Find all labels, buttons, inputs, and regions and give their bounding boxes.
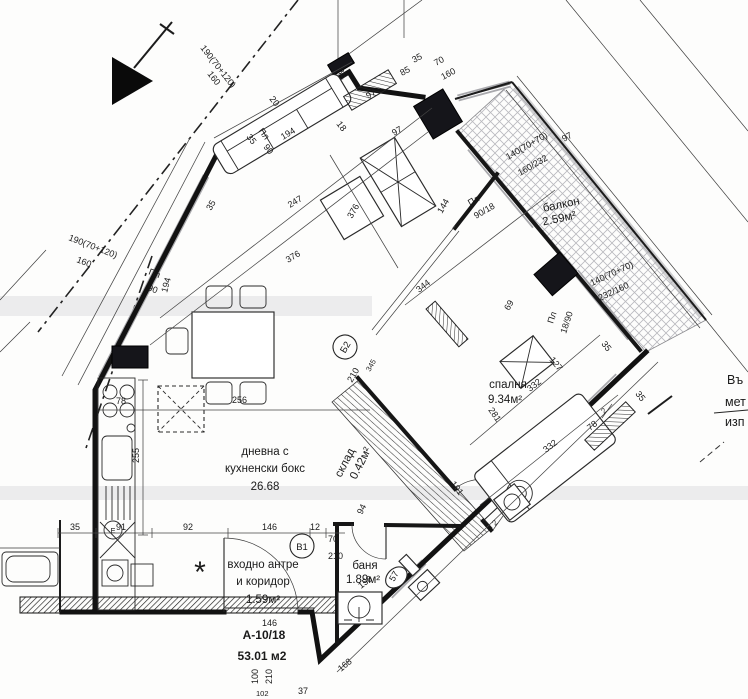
dim-label: 69 (502, 298, 516, 312)
dim-label: 376 (284, 248, 302, 264)
boiler-symbol: Е (110, 526, 115, 535)
window-label: Пл (545, 310, 558, 324)
window-label: 190(70+120) (67, 233, 118, 261)
dim-label: 35 (633, 389, 647, 403)
dim-label: 344 (414, 277, 432, 294)
dim-label: 281 (486, 405, 503, 423)
note-text: мет (725, 395, 746, 409)
room-label-bath: баня (352, 560, 377, 572)
dim-label: 146 (262, 618, 277, 628)
floor-plan-drawing: В1 Б2 190(70+120) 160 190(70+120) 160 70… (0, 0, 748, 699)
window-label: 160 (75, 255, 93, 270)
unit-code: А-10/18 (243, 628, 286, 642)
dim-label: 255 (131, 448, 141, 463)
room-label-hall: входно антре (227, 559, 298, 571)
bath-sink (338, 592, 382, 624)
dim-label: 97 (390, 124, 404, 138)
north-arrow (112, 22, 174, 105)
note-text: изп (725, 415, 744, 429)
dim-label: 92 (183, 522, 193, 532)
dim-label: 256 (232, 395, 247, 405)
window-label: 18/90 (558, 310, 574, 335)
dim-label: 70 (328, 534, 338, 544)
dim-label: 345 (364, 358, 378, 373)
dim-label: 37 (298, 686, 308, 696)
dim-label: 78 (116, 396, 126, 406)
dim-label: 12 (310, 522, 320, 532)
window-label: 160 (439, 66, 457, 82)
dim-label: 146 (262, 522, 277, 532)
room-label-living: кухненски бокс (225, 463, 305, 475)
dim-label: 247 (286, 193, 304, 209)
dim-label: 35 (204, 198, 218, 212)
dim-label: 194 (159, 276, 173, 293)
snowflake-symbol: * (194, 556, 206, 589)
door-tag-b1: В1 (296, 542, 308, 553)
unit-area: 53.01 м2 (238, 649, 287, 663)
room-area-bath: 1.89м² (346, 574, 380, 586)
dim-label: 18 (334, 119, 348, 133)
column (112, 346, 148, 368)
scan-smear (0, 296, 372, 316)
floor-plan-sheet: В1 Б2 190(70+120) 160 190(70+120) 160 70… (0, 0, 748, 699)
dim-label: 35 (599, 339, 613, 353)
room-area-bedroom: 9.34м² (488, 394, 522, 406)
note-divider (714, 410, 748, 413)
dim-label: 85 (398, 64, 412, 78)
note-text: Въ (727, 373, 743, 387)
room-label-bedroom: спалня (489, 379, 527, 391)
room-area-hall: 1.59м² (246, 594, 280, 606)
room-label-hall: и коридор (236, 576, 290, 588)
door-tag-b2: Б2 (338, 340, 353, 355)
dim-label: 91 (116, 522, 126, 532)
dim-label: 210 (328, 551, 343, 561)
balcony-area (458, 76, 712, 352)
dim-label: 35 (70, 522, 80, 532)
dim-label: 94 (355, 502, 368, 515)
dim-label: 100 (250, 669, 260, 684)
dim-label: 102 (256, 689, 269, 698)
window-label: 70 (432, 54, 446, 68)
room-label-living: дневна с (241, 446, 289, 458)
dim-label: 144 (435, 197, 451, 215)
radiator (426, 301, 468, 347)
dim-label: 35 (410, 51, 424, 65)
dim-label: 210 (264, 669, 274, 684)
room-area-living: 26.68 (251, 481, 280, 493)
